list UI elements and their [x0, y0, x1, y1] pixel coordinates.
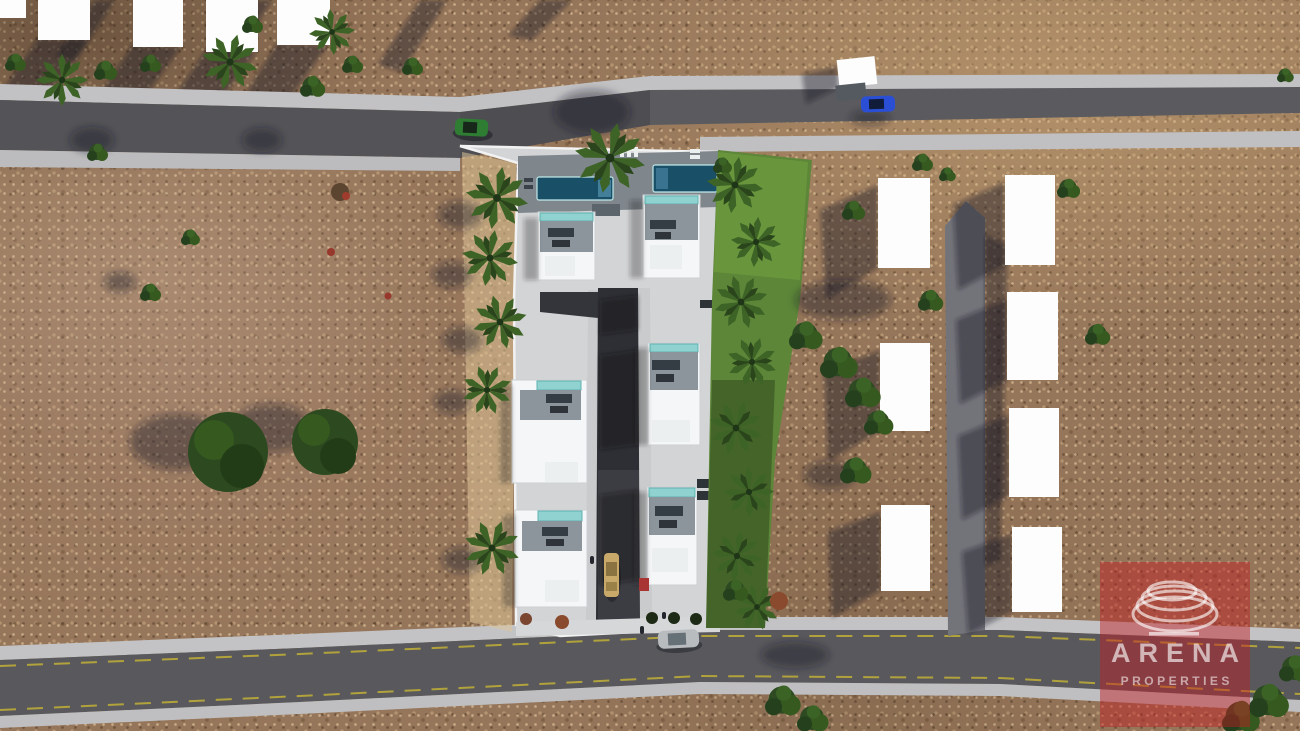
watermark-tagline: PROPERTIES	[1117, 675, 1233, 687]
potted-plants	[646, 612, 702, 625]
red-shrub	[520, 613, 532, 625]
villa-4	[647, 487, 697, 585]
villa-2	[643, 195, 700, 278]
swimming-pool-east	[653, 165, 717, 192]
gold-car	[603, 553, 621, 602]
top-road-south-footpath	[700, 131, 1300, 152]
blue-car	[861, 95, 896, 112]
arena-watermark: ARENA PROPERTIES	[1100, 562, 1250, 727]
red-shrub	[555, 615, 569, 629]
red-planter	[639, 578, 649, 591]
villa-5	[512, 380, 587, 483]
villa-6	[515, 510, 587, 607]
internal-driveway-curb-west	[586, 290, 598, 622]
villa-1	[538, 212, 595, 280]
autumn-bush	[770, 592, 788, 610]
villa-3	[648, 343, 700, 445]
arena-rings-icon	[1125, 570, 1225, 638]
watermark-brand: ARENA	[1103, 640, 1247, 667]
top-road-east-asphalt	[650, 87, 1300, 125]
dry-red-bush	[327, 183, 392, 300]
right-path-shadow	[985, 235, 1008, 566]
pergola	[592, 204, 620, 216]
aerial-site-render: ARENA PROPERTIES	[0, 0, 1300, 731]
